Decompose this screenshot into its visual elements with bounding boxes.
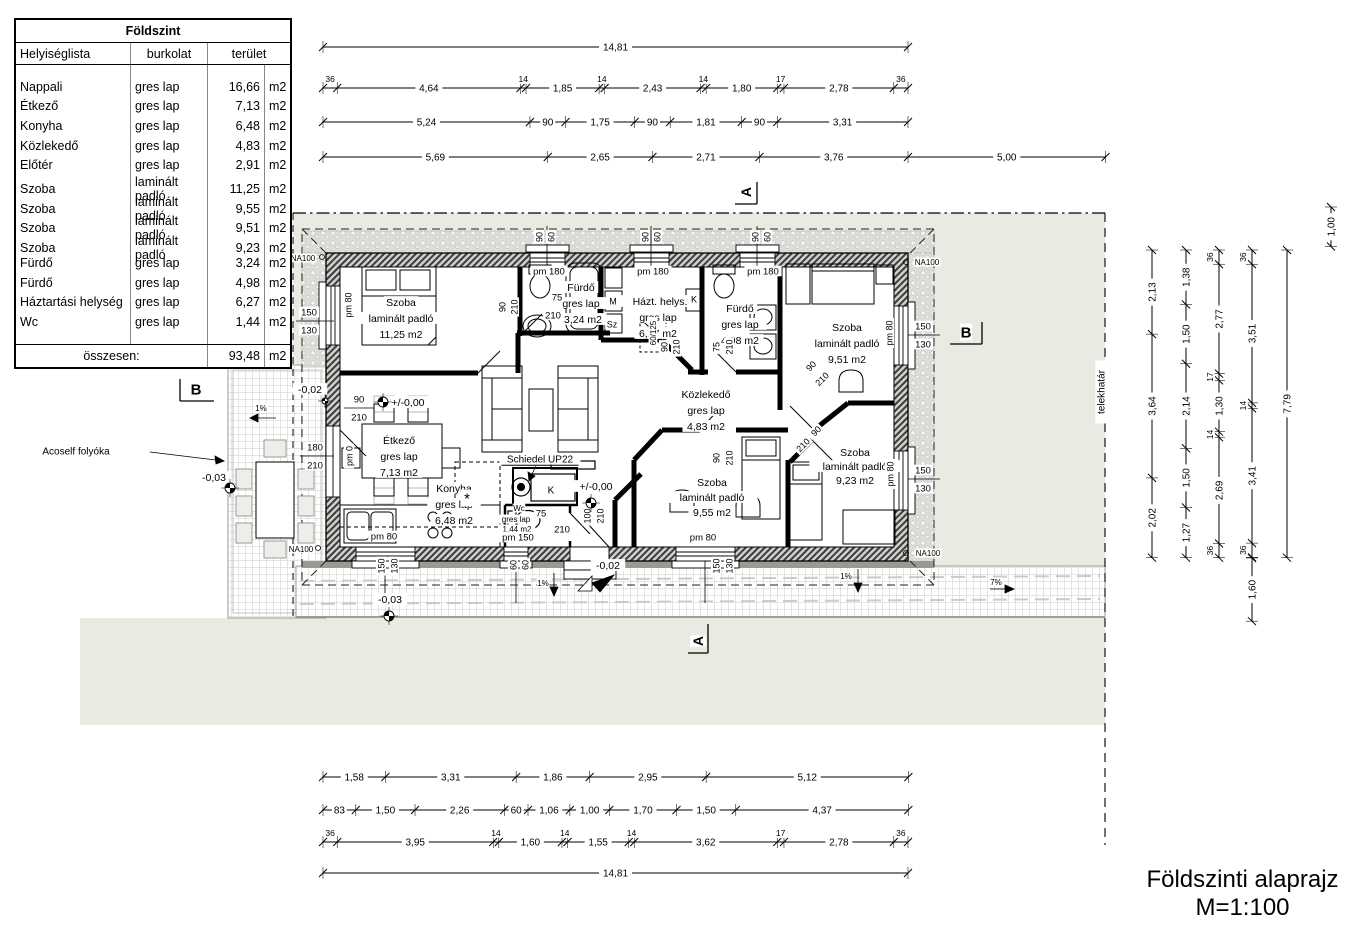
plan-label: -0,03: [373, 593, 408, 606]
schedule-row: Szobalaminált padló9,23m2: [16, 234, 290, 254]
schedule-row: Szobalaminált padló9,55m2: [16, 195, 290, 215]
dim-label: 3,41: [1246, 462, 1258, 489]
svg-text:7,13 m2: 7,13 m2: [380, 467, 418, 479]
plan-label: 100: [582, 506, 592, 525]
plan-label: pm 80: [343, 290, 353, 320]
plan-label: pm 80: [687, 532, 719, 544]
dim-label: 83: [332, 804, 347, 816]
dim-label: 36: [894, 74, 907, 84]
room-label: gres lap: [631, 311, 684, 324]
room-label: Közlekedő: [676, 388, 736, 401]
svg-text:+/-0,00: +/-0,00: [580, 481, 613, 493]
total-label: összesen:: [16, 345, 207, 367]
dim-label: 3,64: [1146, 393, 1158, 420]
schedule-cell: m2: [264, 293, 290, 313]
svg-text:14: 14: [597, 74, 607, 84]
dim-label: 3,31: [829, 116, 856, 128]
room-schedule-table: Földszint Helyiséglista burkolat terület…: [14, 18, 292, 369]
plan-label: 1%: [537, 579, 550, 588]
svg-text:14: 14: [560, 828, 570, 838]
svg-text:2,26: 2,26: [450, 806, 470, 817]
schedule-cell: gres lap: [130, 293, 207, 313]
svg-text:1,00: 1,00: [580, 806, 600, 817]
plan-label: 210: [509, 297, 519, 316]
dim-label: 2,14: [1180, 393, 1192, 420]
svg-text:60: 60: [546, 232, 556, 242]
svg-text:210: 210: [554, 524, 570, 535]
svg-text:90: 90: [640, 232, 650, 242]
svg-text:60/125: 60/125: [649, 320, 658, 345]
svg-text:14: 14: [699, 74, 709, 84]
svg-text:K: K: [548, 486, 555, 497]
svg-text:210: 210: [595, 508, 605, 523]
dim-chain-bottom-openings: 831,502,26601,061,001,701,504,37: [319, 804, 912, 817]
svg-text:150: 150: [376, 558, 386, 573]
schedule-cell: 3,24: [207, 253, 264, 273]
col-header-finish: burkolat: [130, 43, 207, 64]
plan-label: -0,02: [293, 383, 328, 396]
svg-text:36: 36: [325, 74, 335, 84]
svg-text:130: 130: [915, 483, 931, 494]
plan-label: 150: [711, 556, 721, 575]
dim-label: 1,00: [1325, 213, 1337, 240]
dim-label: 14: [595, 74, 608, 84]
schedule-cell: Közlekedő: [16, 136, 130, 156]
svg-text:14,81: 14,81: [603, 869, 628, 880]
schedule-row: Közlekedőgres lap4,83m2: [16, 136, 290, 156]
schedule-cell: Nappali: [16, 77, 130, 97]
svg-text:NA100: NA100: [291, 254, 316, 263]
schedule-row: Étkezőgres lap7,13m2: [16, 97, 290, 117]
schedule-total-row: összesen: 93,48 m2: [16, 344, 290, 367]
svg-text:2,69: 2,69: [1215, 480, 1226, 500]
schedule-cell: m2: [264, 253, 290, 273]
svg-text:NA100: NA100: [915, 258, 940, 267]
room-label: 7,13 m2: [375, 466, 422, 479]
svg-text:210: 210: [509, 299, 519, 314]
schedule-row: Háztartási helységgres lap6,27m2: [16, 293, 290, 313]
svg-text:A: A: [690, 636, 706, 646]
svg-text:B: B: [961, 324, 972, 341]
total-unit: m2: [264, 345, 290, 367]
plan-label: pm 80: [885, 459, 895, 489]
svg-text:3,31: 3,31: [441, 773, 461, 784]
plan-label: 130: [299, 325, 319, 337]
dim-label: 14: [1238, 399, 1248, 412]
svg-text:Schiedel UP22: Schiedel UP22: [507, 455, 574, 466]
dim-label: 17: [1205, 370, 1215, 383]
plan-label: NA100: [288, 545, 315, 554]
svg-text:5,00: 5,00: [997, 153, 1017, 164]
svg-text:*: *: [464, 490, 470, 507]
schedule-cell: 16,66: [207, 77, 264, 97]
dim-label: 1,58: [341, 771, 368, 783]
dim-label: 1,70: [629, 804, 656, 816]
svg-text:1,85: 1,85: [553, 84, 573, 95]
svg-text:Acoself folyóka: Acoself folyóka: [42, 447, 110, 458]
room-label: Szoba: [830, 321, 865, 334]
plan-label: 210: [543, 310, 563, 322]
dim-label: 14: [489, 828, 502, 838]
dim-label: 36: [894, 828, 907, 838]
room-label: Szoba: [695, 476, 730, 489]
plan-label: 90: [711, 451, 721, 465]
plot-boundary-label: telekhatár: [1095, 361, 1107, 424]
svg-text:36: 36: [1205, 546, 1215, 556]
dim-chain-bottom-rooms: 1,583,311,862,955,12: [319, 771, 912, 784]
dim-chain-right-4b: 1,60: [1246, 554, 1259, 625]
svg-text:gres lap: gres lap: [721, 319, 759, 331]
schedule-cell: gres lap: [130, 77, 207, 97]
svg-text:NA100: NA100: [916, 549, 941, 558]
plan-label: 130: [389, 556, 399, 575]
svg-text:1,58: 1,58: [344, 773, 364, 784]
schedule-cell: Előtér: [16, 155, 130, 175]
col-header-room: Helyiséglista: [16, 43, 130, 64]
svg-text:1,70: 1,70: [633, 806, 653, 817]
dim-label: 3,31: [437, 771, 464, 783]
room-label: 6,48 m2: [430, 514, 477, 527]
plan-label: 150: [913, 465, 933, 477]
dim-label: 14: [1205, 428, 1215, 441]
plan-label: 90: [352, 394, 366, 406]
svg-text:3,24 m2: 3,24 m2: [564, 314, 602, 326]
svg-text:gres lap: gres lap: [639, 312, 677, 324]
dim-label: 2,71: [692, 151, 719, 163]
svg-text:pm 180: pm 180: [747, 266, 779, 277]
plan-label: 130: [913, 483, 933, 495]
svg-text:130: 130: [389, 558, 399, 573]
svg-text:75: 75: [552, 292, 563, 303]
svg-text:90: 90: [534, 232, 544, 242]
svg-text:1,06: 1,06: [539, 806, 559, 817]
room-label: 3,24 m2: [559, 313, 606, 326]
svg-text:75: 75: [711, 342, 721, 352]
plan-label: 210: [671, 337, 681, 356]
svg-text:2,14: 2,14: [1182, 396, 1193, 416]
svg-text:pm 80: pm 80: [690, 532, 716, 543]
schedule-cell: gres lap: [130, 253, 207, 273]
svg-text:gres lap: gres lap: [502, 515, 531, 524]
svg-text:3,51: 3,51: [1248, 323, 1259, 343]
schedule-cell: 4,98: [207, 273, 264, 293]
svg-text:3,95: 3,95: [405, 838, 425, 849]
schedule-cell: m2: [264, 77, 290, 97]
schedule-title: Földszint: [16, 20, 290, 43]
svg-text:2,65: 2,65: [590, 153, 610, 164]
plan-label: pm 80: [884, 318, 894, 348]
schedule-cell: 6,48: [207, 116, 264, 136]
plan-label: 60: [762, 230, 772, 244]
floor-plan-sheet: 14,81364,64141,85142,43141,80172,78365,2…: [0, 0, 1350, 936]
svg-text:A: A: [738, 187, 754, 197]
svg-text:2,77: 2,77: [1215, 309, 1226, 329]
svg-text:210: 210: [351, 412, 367, 423]
svg-text:14: 14: [519, 74, 529, 84]
dim-label: 7,79: [1281, 390, 1293, 417]
section-marker-b-left: B: [190, 381, 202, 399]
chimney-label: Schiedel UP22: [500, 453, 581, 465]
svg-text:1,81: 1,81: [696, 118, 716, 129]
svg-text:1,50: 1,50: [1182, 324, 1193, 344]
dim-label: 2,43: [639, 82, 666, 94]
dim-label: 2,78: [825, 82, 852, 94]
plan-label: pm 0: [344, 444, 354, 469]
dim-label: 4,37: [809, 804, 836, 816]
plan-label: +/-0,00: [384, 396, 431, 409]
room-label: laminált padló: [801, 337, 892, 350]
svg-text:14: 14: [1238, 401, 1248, 411]
svg-text:9,55 m2: 9,55 m2: [693, 507, 731, 519]
room-label: Étkező: [379, 434, 420, 447]
svg-text:2,43: 2,43: [643, 84, 663, 95]
dim-label: 5,00: [993, 151, 1020, 163]
svg-text:83: 83: [334, 806, 346, 817]
svg-text:1%: 1%: [537, 579, 549, 588]
plan-label: 90: [497, 300, 507, 314]
svg-text:telekhatár: telekhatár: [1097, 369, 1108, 414]
svg-text:3,31: 3,31: [833, 118, 853, 129]
svg-text:1,50: 1,50: [376, 806, 396, 817]
svg-text:4,64: 4,64: [419, 84, 439, 95]
dim-label: 5,12: [794, 771, 821, 783]
plan-label: 210: [595, 506, 605, 525]
dim-label: 2,02: [1146, 504, 1158, 531]
schedule-spacer: [16, 65, 290, 77]
schedule-spacer: [16, 332, 290, 344]
svg-text:pm 80: pm 80: [371, 531, 397, 542]
svg-text:1%: 1%: [840, 572, 852, 581]
schedule-row: Konyhagres lap6,48m2: [16, 116, 290, 136]
room-label: gres lap: [679, 404, 732, 417]
svg-text:14: 14: [491, 828, 501, 838]
dim-chain-bottom-walls: 363,95141,60141,55143,62172,7836: [319, 828, 912, 849]
schedule-cell: m2: [264, 312, 290, 332]
title-block: Földszinti alaprajz M=1:100: [1140, 866, 1345, 922]
svg-text:gres lap: gres lap: [687, 405, 725, 417]
schedule-cell: gres lap: [130, 312, 207, 332]
plan-label: 90: [640, 230, 650, 244]
plan-label: 180: [305, 442, 325, 454]
svg-text:-0,03: -0,03: [202, 472, 226, 484]
svg-text:+/-0,00: +/-0,00: [392, 397, 425, 409]
plan-label: 1%: [840, 572, 853, 581]
room-label: laminált padló: [355, 312, 446, 325]
plan-label: pm 80: [368, 531, 400, 543]
plan-label: 75: [711, 340, 721, 354]
svg-text:60: 60: [762, 232, 772, 242]
schedule-row: Szobalaminált padló11,25m2: [16, 175, 290, 195]
drawing-title: Földszinti alaprajz: [1140, 866, 1345, 894]
svg-text:pm 80: pm 80: [884, 320, 894, 345]
svg-text:-0,02: -0,02: [596, 560, 620, 572]
svg-text:B: B: [191, 381, 202, 398]
svg-text:36: 36: [1205, 252, 1215, 262]
plan-label: 7%: [990, 578, 1003, 587]
dim-label: 2,26: [446, 804, 473, 816]
svg-text:1,27: 1,27: [1182, 522, 1193, 542]
svg-text:2,95: 2,95: [638, 773, 658, 784]
dim-label: 36: [1205, 251, 1215, 264]
svg-text:gres lap: gres lap: [380, 451, 418, 463]
schedule-cell: 1,44: [207, 312, 264, 332]
dim-label: 1,55: [585, 836, 612, 848]
schedule-cell: Konyha: [16, 116, 130, 136]
plan-label: M: [609, 296, 617, 306]
svg-text:2,78: 2,78: [829, 84, 849, 95]
dim-label: 3,76: [820, 151, 847, 163]
schedule-row: Szobalaminált padló9,51m2: [16, 214, 290, 234]
plan-label: NA100: [914, 258, 941, 267]
schedule-cell: gres lap: [130, 136, 207, 156]
svg-text:Fürdő: Fürdő: [726, 303, 754, 315]
schedule-cell: m2: [264, 155, 290, 175]
plan-label: -0,02: [591, 559, 626, 572]
svg-text:3,76: 3,76: [824, 153, 844, 164]
dim-label: 1,00: [576, 804, 603, 816]
plan-label: 130: [724, 556, 734, 575]
dim-chain-top-axes: 5,24901,75901,81903,31: [319, 116, 912, 129]
svg-text:laminált padló: laminált padló: [369, 313, 434, 325]
plan-label: 150: [376, 556, 386, 575]
dim-label: 1,60: [517, 836, 544, 848]
svg-text:11,25 m2: 11,25 m2: [380, 329, 423, 341]
dim-label: 2,95: [634, 771, 661, 783]
plan-label: 210: [552, 524, 572, 536]
svg-text:14: 14: [1205, 429, 1215, 439]
svg-text:1,00: 1,00: [1327, 217, 1338, 237]
dim-label: 1,50: [693, 804, 720, 816]
svg-text:1%: 1%: [255, 404, 267, 413]
dim-label: 36: [1238, 544, 1248, 557]
svg-text:1,60: 1,60: [1248, 579, 1259, 599]
plan-label: pm 180: [530, 266, 567, 278]
drawing-scale: M=1:100: [1140, 894, 1345, 922]
svg-text:36: 36: [1238, 252, 1248, 262]
plan-label: K: [547, 484, 556, 496]
plan-label: pm 180: [744, 266, 781, 278]
dim-chain-right-overall: 7,79: [1281, 246, 1294, 562]
schedule-cell: m2: [264, 116, 290, 136]
plan-label: K: [690, 294, 698, 304]
dim-label: 3,62: [692, 836, 719, 848]
svg-text:90: 90: [750, 232, 760, 242]
svg-text:Szoba: Szoba: [697, 477, 727, 489]
dim-label: 60: [509, 804, 524, 816]
drain-label: Acoself folyóka: [30, 445, 123, 457]
walkway: [296, 566, 1105, 617]
plan-label: pm 180: [634, 266, 671, 278]
svg-text:17: 17: [776, 828, 786, 838]
svg-text:210: 210: [724, 450, 734, 465]
svg-text:9,23 m2: 9,23 m2: [836, 475, 874, 487]
svg-text:36: 36: [896, 828, 906, 838]
schedule-cell: 4,83: [207, 136, 264, 156]
room-label: 11,25 m2: [374, 328, 427, 341]
dim-chain-right-3: 362,77171,30142,6936: [1205, 246, 1226, 562]
dim-label: 14: [625, 828, 638, 838]
svg-text:Fürdő: Fürdő: [567, 282, 595, 294]
svg-text:36: 36: [896, 74, 906, 84]
svg-text:Közlekedő: Közlekedő: [681, 389, 730, 401]
dim-label: 2,65: [587, 151, 614, 163]
svg-text:1,80: 1,80: [732, 84, 752, 95]
svg-text:pm 180: pm 180: [533, 266, 565, 277]
svg-text:1,55: 1,55: [588, 838, 608, 849]
schedule-cell: Étkező: [16, 97, 130, 117]
dim-label: 1,75: [587, 116, 614, 128]
plan-label: NA100: [915, 549, 942, 558]
schedule-row: Nappaligres lap16,66m2: [16, 77, 290, 97]
room-label: Fürdő: [723, 302, 758, 315]
schedule-row: Wcgres lap1,44m2: [16, 312, 290, 332]
plan-label: Sz: [605, 319, 619, 329]
schedule-body: Nappaligres lap16,66m2Étkezőgres lap7,13…: [16, 77, 290, 332]
svg-text:pm 0: pm 0: [344, 446, 354, 466]
dim-label: 2,69: [1213, 477, 1225, 504]
svg-text:pm 80: pm 80: [343, 292, 353, 317]
schedule-cell: 2,91: [207, 155, 264, 175]
dim-label: 1,80: [728, 82, 755, 94]
svg-text:150: 150: [915, 465, 931, 476]
svg-text:9,51 m2: 9,51 m2: [828, 354, 866, 366]
svg-text:2,02: 2,02: [1148, 508, 1159, 528]
svg-text:pm 80: pm 80: [885, 461, 895, 486]
svg-text:-0,02: -0,02: [298, 384, 322, 396]
dim-chain-right-1: 2,133,642,02: [1146, 246, 1159, 562]
dim-label: 36: [324, 828, 337, 838]
schedule-row: Fürdőgres lap3,24m2: [16, 253, 290, 273]
plan-label: NA100: [290, 254, 317, 263]
dim-label: 2,77: [1213, 305, 1225, 332]
room-label: 9,23 m2: [831, 474, 878, 487]
svg-text:90: 90: [354, 394, 365, 405]
plan-label: 150: [913, 321, 933, 333]
svg-text:laminált padló: laminált padló: [815, 338, 880, 350]
svg-text:75: 75: [536, 508, 547, 519]
dim-label: 1,30: [1213, 393, 1225, 420]
svg-text:90: 90: [542, 118, 554, 129]
plan-label: 210: [349, 412, 369, 424]
section-marker-a-bottom: A: [690, 635, 706, 646]
dim-chain-top-overall: 14,81: [319, 41, 912, 54]
svg-text:210: 210: [307, 460, 323, 471]
dim-chain-top-openings: 364,64141,85142,43141,80172,7836: [319, 74, 912, 95]
schedule-cell: Fürdő: [16, 253, 130, 273]
svg-text:Szoba: Szoba: [840, 447, 870, 459]
svg-text:130: 130: [915, 339, 931, 350]
svg-text:1,30: 1,30: [1215, 396, 1226, 416]
plan-label: 60: [652, 230, 662, 244]
section-marker-a-top: A: [738, 186, 754, 197]
svg-text:210: 210: [545, 310, 561, 321]
plan-label: 90: [534, 230, 544, 244]
plan-label: 75: [550, 292, 564, 304]
plan-label: pm 150: [499, 532, 536, 544]
schedule-cell: m2: [264, 273, 290, 293]
svg-text:2,13: 2,13: [1148, 282, 1159, 302]
plan-label: 60/125: [649, 317, 658, 349]
plan-label: 75: [534, 508, 548, 520]
room-label: Szoba: [838, 446, 873, 459]
svg-text:1,75: 1,75: [590, 118, 610, 129]
svg-text:pm 150: pm 150: [502, 532, 534, 543]
dim-label: 1,27: [1180, 519, 1192, 546]
svg-text:90: 90: [497, 302, 507, 312]
svg-text:17: 17: [776, 74, 786, 84]
room-label: 4,83 m2: [682, 420, 729, 433]
schedule-cell: gres lap: [130, 273, 207, 293]
